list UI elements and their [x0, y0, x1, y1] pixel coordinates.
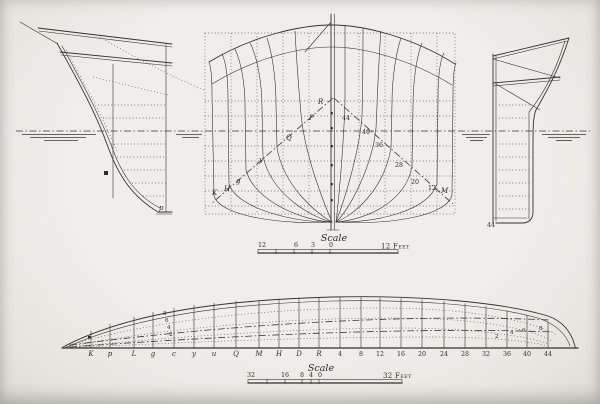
counter-deck-line — [493, 77, 560, 83]
rail-line — [39, 31, 172, 47]
datum-marker — [88, 336, 91, 339]
svg-text:R: R — [315, 350, 322, 358]
sections-aft — [336, 26, 456, 223]
scale-top: Scale 12 6 3 0 12 Feet — [258, 233, 410, 254]
svg-text:8: 8 — [163, 311, 167, 317]
svg-text:24: 24 — [440, 351, 448, 358]
svg-text:12: 12 — [376, 351, 384, 358]
scale-tick-label: 3 — [311, 242, 315, 249]
scale-unit-label: 32 Feet — [383, 372, 412, 380]
svg-text:u: u — [212, 350, 217, 358]
svg-text:20: 20 — [411, 179, 419, 186]
svg-text:4: 4 — [167, 325, 171, 331]
svg-text:K: K — [211, 189, 218, 197]
svg-text:8: 8 — [359, 351, 363, 358]
svg-text:40: 40 — [523, 351, 531, 358]
svg-text:M: M — [440, 187, 449, 195]
svg-text:40: 40 — [362, 129, 370, 136]
svg-text:12: 12 — [428, 185, 436, 192]
svg-text:Q: Q — [233, 350, 239, 358]
waterline-grid — [205, 101, 455, 206]
svg-text:y: y — [191, 350, 197, 358]
svg-text:g: g — [151, 350, 156, 358]
station-lines — [91, 298, 548, 349]
svg-text:p: p — [108, 350, 113, 358]
scale-bottom: Scale 32 16 8 4 0 32 Feet — [247, 363, 412, 384]
svg-text:c: c — [172, 350, 176, 358]
svg-text:28: 28 — [461, 351, 469, 358]
svg-text:32: 32 — [482, 351, 490, 358]
half-breadth-plan: K p L g c y u Q M H D R 4 8 12 16 20 24 … — [62, 297, 578, 358]
svg-text:36: 36 — [375, 142, 383, 149]
counter-rail-line — [493, 41, 567, 59]
scale-tick-label: 12 — [258, 242, 266, 249]
rabbet-dotted — [66, 50, 117, 152]
stern-outer-curve — [496, 38, 569, 223]
lines-plan-drawing: p 44 — [0, 0, 600, 404]
deck-line — [61, 55, 172, 66]
svg-text:Q: Q — [286, 134, 292, 142]
scale-tick-label: 8 — [300, 372, 304, 379]
svg-text:H: H — [275, 350, 283, 358]
station-labels: K p L g c y u Q M H D R 4 8 12 16 20 24 … — [87, 350, 552, 358]
bow-profile: p — [20, 22, 204, 214]
svg-text:20: 20 — [418, 351, 426, 358]
svg-text:16: 16 — [397, 351, 405, 358]
bowsprit-line — [20, 22, 58, 44]
waterlines-dotted — [499, 105, 530, 209]
rail-arc — [209, 25, 455, 64]
svg-text:4: 4 — [338, 351, 342, 358]
scale-tick-label: 16 — [281, 372, 289, 379]
stern-station-label: 44 — [487, 222, 495, 229]
grid-frame — [205, 33, 455, 214]
svg-text:P: P — [308, 114, 314, 122]
scale-title: Scale — [321, 233, 348, 244]
svg-text:K: K — [87, 350, 94, 358]
svg-text:28: 28 — [395, 162, 403, 169]
svg-text:2: 2 — [495, 334, 499, 340]
scale-unit-label: 12 Feet — [381, 243, 410, 251]
sections-forward — [209, 31, 332, 223]
scale-tick-label: 0 — [329, 242, 333, 249]
svg-text:36: 36 — [503, 351, 511, 358]
stern-inner-curve — [529, 41, 565, 219]
svg-text:44: 44 — [544, 351, 552, 358]
scale-tick-label: 6 — [294, 242, 298, 249]
section-labels-aft: 44 40 36 28 20 12 M — [342, 115, 449, 195]
deck-edge-dotted — [100, 37, 204, 90]
svg-text:8: 8 — [539, 326, 543, 332]
waterline-number-labels: 2 4 6 8 — [495, 326, 543, 340]
svg-text:M: M — [254, 350, 263, 358]
rail-line — [38, 28, 172, 44]
svg-text:6: 6 — [522, 328, 526, 334]
svg-text:g: g — [236, 177, 241, 185]
bow-station-label: p — [159, 204, 164, 212]
stern-profile: 44 — [487, 38, 569, 229]
body-plan: R P Q y g H K 44 40 36 28 20 12 M — [205, 14, 456, 230]
scale-tick-label: 32 — [247, 372, 255, 379]
svg-text:L: L — [131, 350, 137, 358]
svg-text:H: H — [223, 185, 231, 193]
svg-text:2: 2 — [169, 332, 173, 338]
counter-diagonal — [493, 59, 560, 78]
scale-tick-label: 0 — [318, 372, 322, 379]
deck-line — [60, 52, 172, 63]
datum-marker — [104, 171, 108, 175]
svg-text:D: D — [295, 350, 302, 358]
svg-text:4: 4 — [510, 330, 514, 336]
svg-text:R: R — [317, 98, 324, 106]
counter-rail-line — [493, 38, 569, 56]
scale-tick-label: 4 — [309, 372, 313, 379]
svg-text:44: 44 — [342, 115, 350, 122]
svg-text:6: 6 — [165, 318, 169, 324]
lines-plan-plate: p 44 — [0, 0, 600, 404]
